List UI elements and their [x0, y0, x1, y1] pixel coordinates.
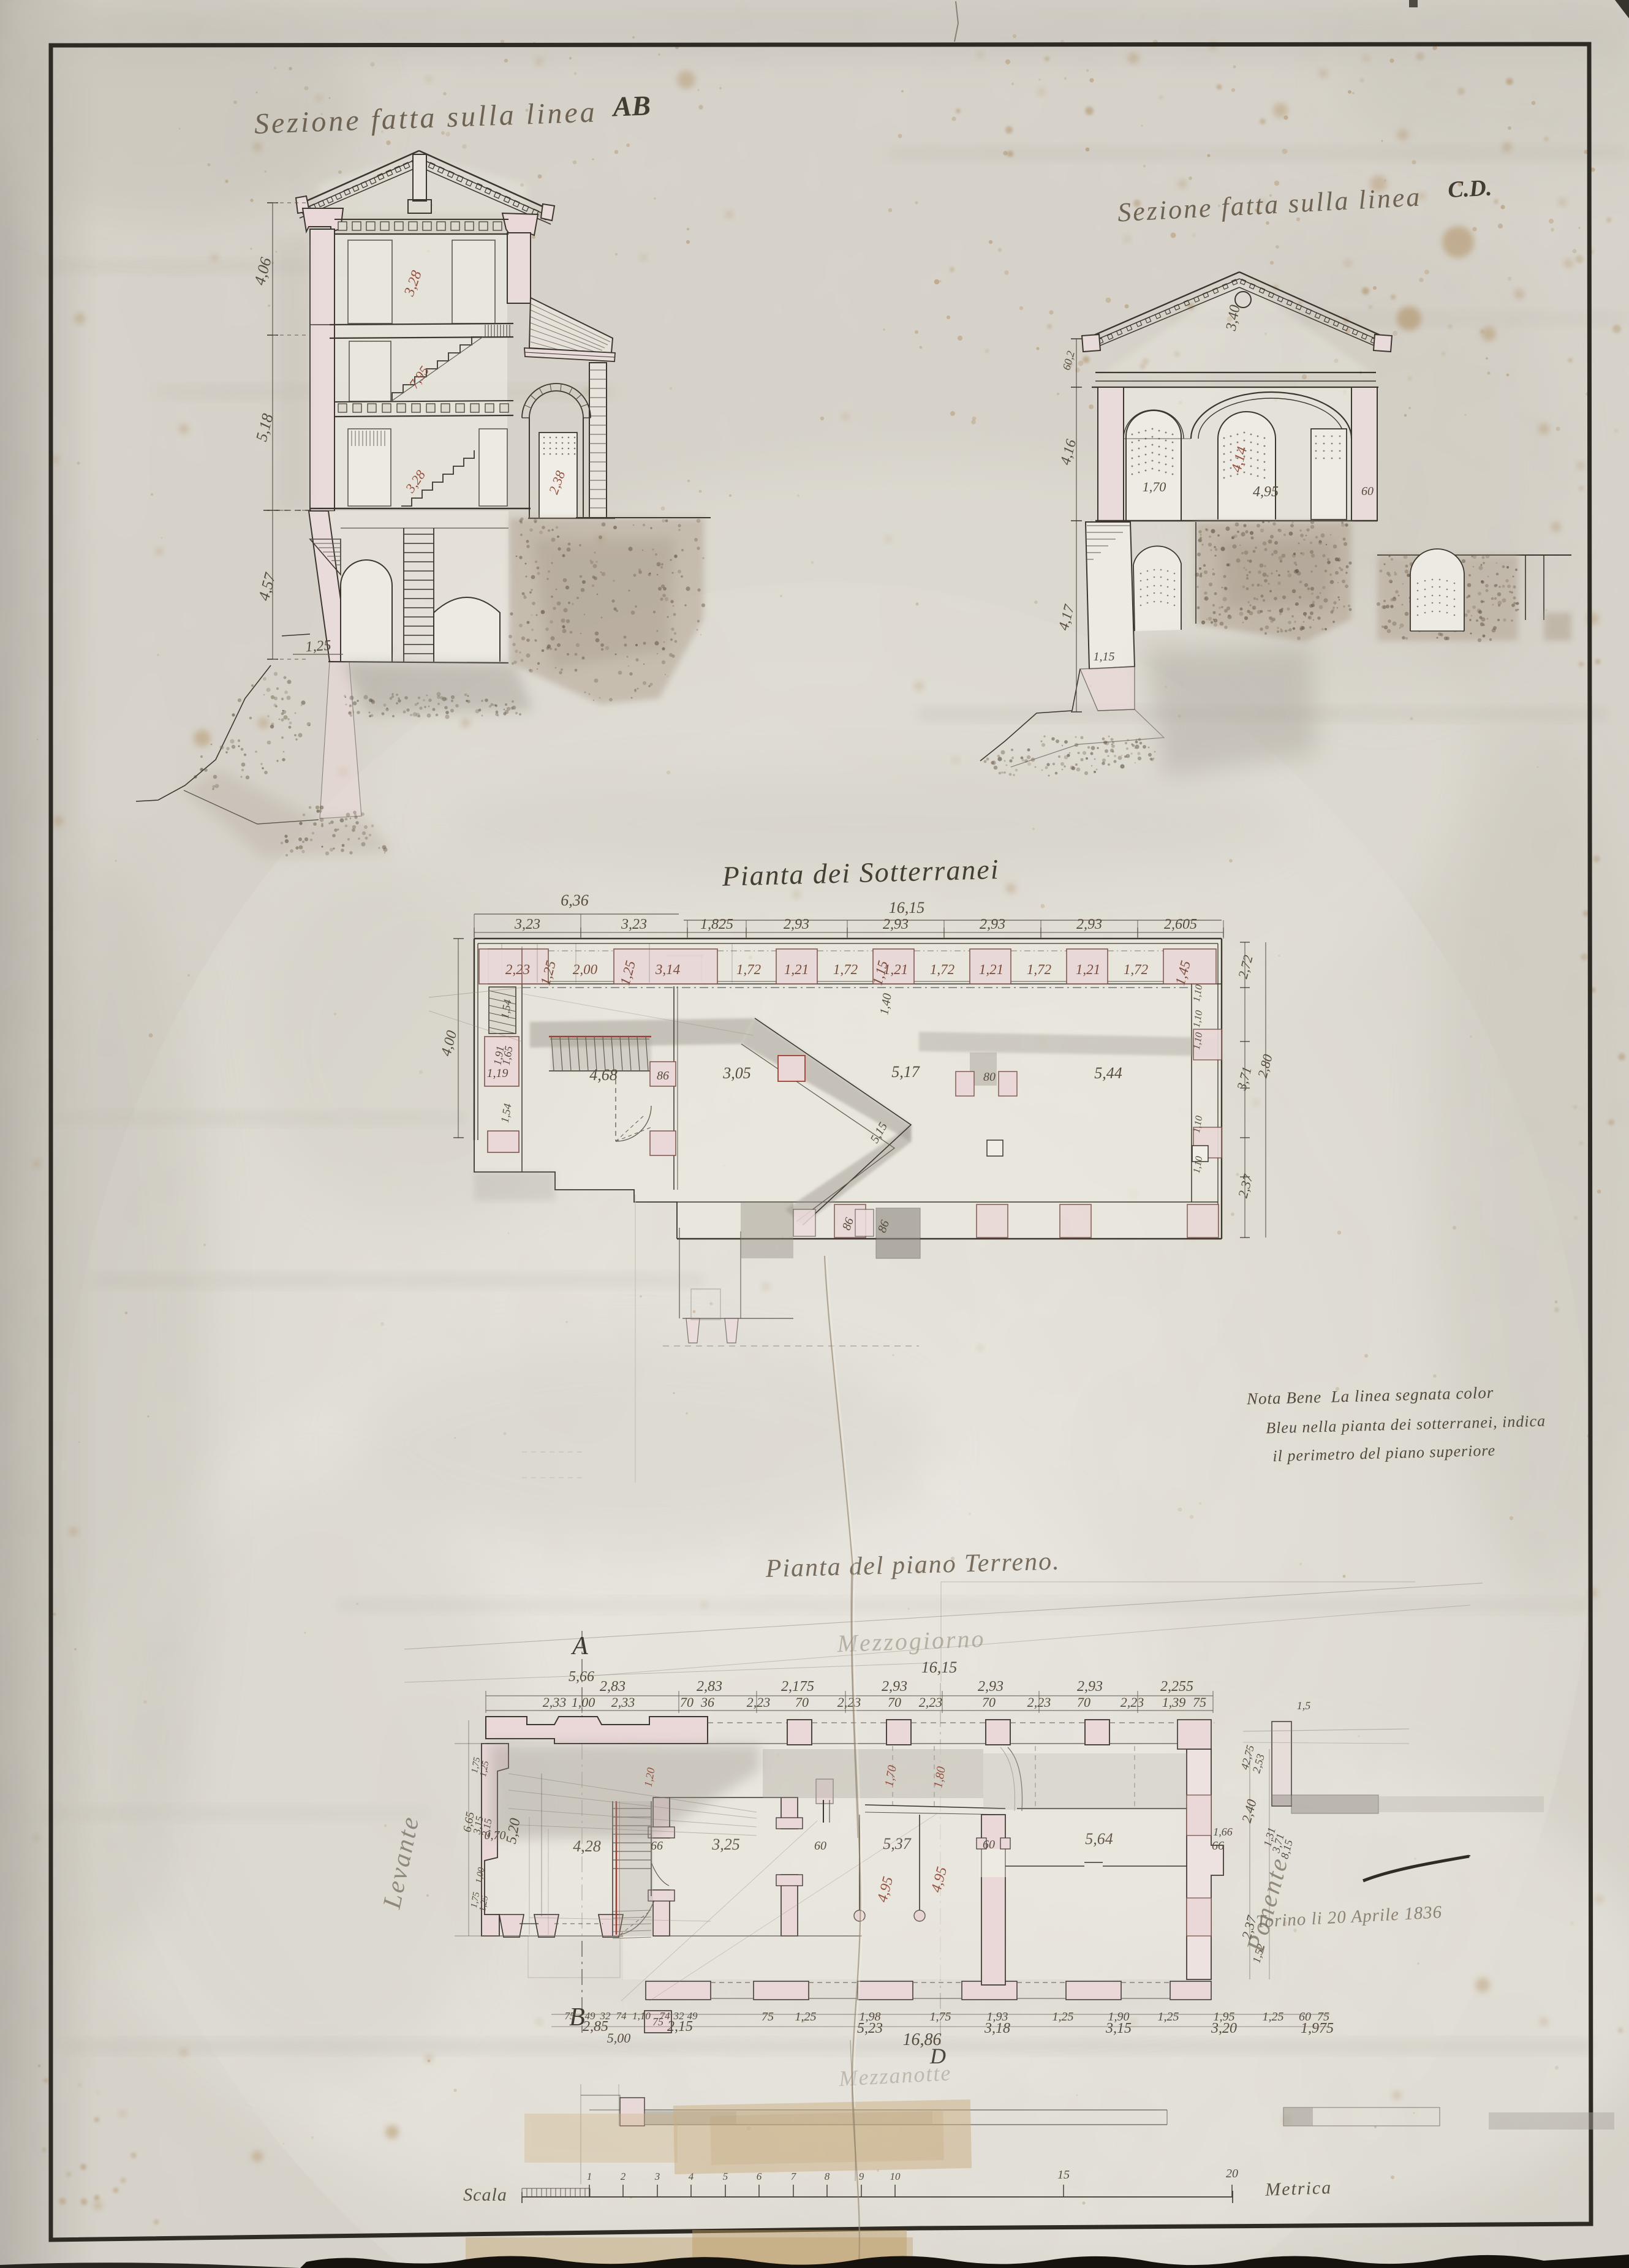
- svg-text:2,23: 2,23: [837, 1695, 861, 1710]
- svg-text:3,23: 3,23: [621, 917, 647, 932]
- svg-text:5,64: 5,64: [1085, 1830, 1113, 1848]
- svg-text:75: 75: [1193, 1695, 1206, 1710]
- svg-text:1,25: 1,25: [1158, 2010, 1179, 2024]
- svg-text:75: 75: [565, 2010, 575, 2022]
- svg-text:86: 86: [657, 1069, 669, 1083]
- svg-text:3,20: 3,20: [1211, 2020, 1237, 2036]
- svg-text:4,68: 4,68: [589, 1066, 618, 1084]
- svg-text:1,39: 1,39: [1162, 1695, 1186, 1710]
- svg-text:1,5: 1,5: [1297, 1699, 1311, 1712]
- svg-text:3,14: 3,14: [655, 962, 680, 977]
- svg-text:2,255: 2,255: [1160, 1679, 1193, 1695]
- svg-text:1,70: 1,70: [1143, 479, 1166, 494]
- svg-text:1,72: 1,72: [1124, 962, 1148, 977]
- svg-text:70: 70: [795, 1695, 809, 1710]
- svg-text:2,83: 2,83: [600, 1679, 626, 1695]
- svg-text:36: 36: [700, 1695, 714, 1710]
- svg-text:70: 70: [1077, 1695, 1090, 1710]
- svg-text:2,93: 2,93: [1076, 917, 1102, 932]
- svg-text:2: 2: [621, 2171, 626, 2182]
- svg-text:10: 10: [890, 2171, 901, 2182]
- svg-text:2,33: 2,33: [611, 1695, 635, 1710]
- svg-text:16,15: 16,15: [889, 899, 925, 917]
- svg-text:1,72: 1,72: [930, 962, 954, 977]
- svg-text:20: 20: [1226, 2167, 1238, 2180]
- svg-text:Mezzogiorno: Mezzogiorno: [836, 1625, 986, 1657]
- svg-text:A: A: [570, 1632, 588, 1660]
- svg-text:5,37: 5,37: [883, 1835, 912, 1853]
- svg-text:1,00: 1,00: [572, 1695, 595, 1710]
- svg-text:1,21: 1,21: [784, 962, 809, 977]
- svg-text:3,05: 3,05: [722, 1064, 751, 1082]
- svg-text:3,15: 3,15: [1105, 2020, 1132, 2036]
- svg-text:3,23: 3,23: [514, 917, 540, 932]
- svg-text:60: 60: [983, 1838, 995, 1851]
- svg-text:2,93: 2,93: [883, 917, 909, 932]
- svg-text:1,19: 1,19: [487, 1067, 508, 1080]
- svg-text:9: 9: [859, 2171, 864, 2182]
- svg-text:2,23: 2,23: [505, 962, 530, 977]
- svg-text:1,25: 1,25: [1053, 2010, 1074, 2024]
- svg-text:66: 66: [1212, 1839, 1224, 1853]
- svg-text:16,15: 16,15: [921, 1658, 958, 1676]
- svg-text:2,605: 2,605: [1164, 917, 1197, 932]
- svg-text:3: 3: [654, 2171, 660, 2182]
- svg-text:2,93: 2,93: [882, 1679, 907, 1695]
- svg-text:4,28: 4,28: [573, 1837, 601, 1855]
- svg-text:70: 70: [680, 1695, 694, 1710]
- svg-text:1,10: 1,10: [632, 2010, 651, 2022]
- svg-text:1,72: 1,72: [736, 962, 761, 977]
- svg-text:1,25: 1,25: [795, 2010, 817, 2024]
- svg-text:5,17: 5,17: [891, 1063, 920, 1081]
- svg-text:4,95: 4,95: [1253, 484, 1279, 500]
- svg-text:70: 70: [982, 1695, 996, 1710]
- svg-text:1,975: 1,975: [1301, 2020, 1334, 2036]
- svg-text:1,72: 1,72: [1027, 962, 1051, 977]
- svg-text:AB: AB: [611, 89, 651, 122]
- svg-text:3,18: 3,18: [984, 2020, 1010, 2036]
- svg-text:2,33: 2,33: [543, 1695, 567, 1710]
- svg-text:2,93: 2,93: [978, 1679, 1003, 1695]
- svg-text:1,72: 1,72: [833, 962, 858, 977]
- svg-text:2,00: 2,00: [573, 962, 598, 977]
- svg-text:60: 60: [1361, 485, 1374, 498]
- svg-text:1,25: 1,25: [1263, 2010, 1284, 2024]
- svg-text:5,00: 5,00: [607, 2030, 631, 2046]
- svg-text:5,66: 5,66: [569, 1669, 594, 1685]
- svg-text:2,93: 2,93: [980, 917, 1005, 932]
- svg-text:5,44: 5,44: [1094, 1064, 1122, 1082]
- svg-text:5,23: 5,23: [857, 2020, 883, 2036]
- svg-text:2,83: 2,83: [697, 1679, 722, 1695]
- svg-text:3,25: 3,25: [711, 1835, 740, 1853]
- svg-text:1,15: 1,15: [1094, 650, 1115, 663]
- svg-text:75: 75: [762, 2010, 774, 2024]
- svg-text:C.D.: C.D.: [1447, 175, 1492, 203]
- svg-text:1,75: 1,75: [930, 2010, 951, 2024]
- svg-text:1,21: 1,21: [883, 962, 908, 977]
- svg-text:Scala: Scala: [463, 2185, 507, 2205]
- svg-text:1: 1: [587, 2171, 592, 2182]
- svg-text:74: 74: [616, 2010, 627, 2022]
- svg-text:Metrica: Metrica: [1264, 2177, 1332, 2200]
- svg-text:6,36: 6,36: [561, 891, 589, 909]
- svg-text:1,21: 1,21: [979, 962, 1003, 977]
- svg-text:15: 15: [1057, 2168, 1070, 2182]
- svg-text:16,86: 16,86: [903, 2030, 942, 2049]
- svg-text:70: 70: [888, 1695, 901, 1710]
- svg-text:80: 80: [983, 1070, 996, 1084]
- svg-text:2,23: 2,23: [747, 1695, 771, 1710]
- svg-text:2,93: 2,93: [1077, 1679, 1103, 1695]
- svg-text:2,23: 2,23: [919, 1695, 943, 1710]
- svg-text:1,25: 1,25: [305, 638, 332, 656]
- svg-text:60: 60: [814, 1839, 826, 1853]
- svg-text:2,175: 2,175: [781, 1679, 814, 1695]
- svg-text:1,825: 1,825: [700, 917, 733, 932]
- svg-text:2,23: 2,23: [1121, 1695, 1144, 1710]
- svg-text:8: 8: [825, 2171, 830, 2182]
- svg-text:1,21: 1,21: [1076, 962, 1100, 977]
- svg-text:66: 66: [651, 1839, 663, 1853]
- svg-text:1,66: 1,66: [1213, 1826, 1233, 1838]
- svg-text:2,93: 2,93: [784, 917, 809, 932]
